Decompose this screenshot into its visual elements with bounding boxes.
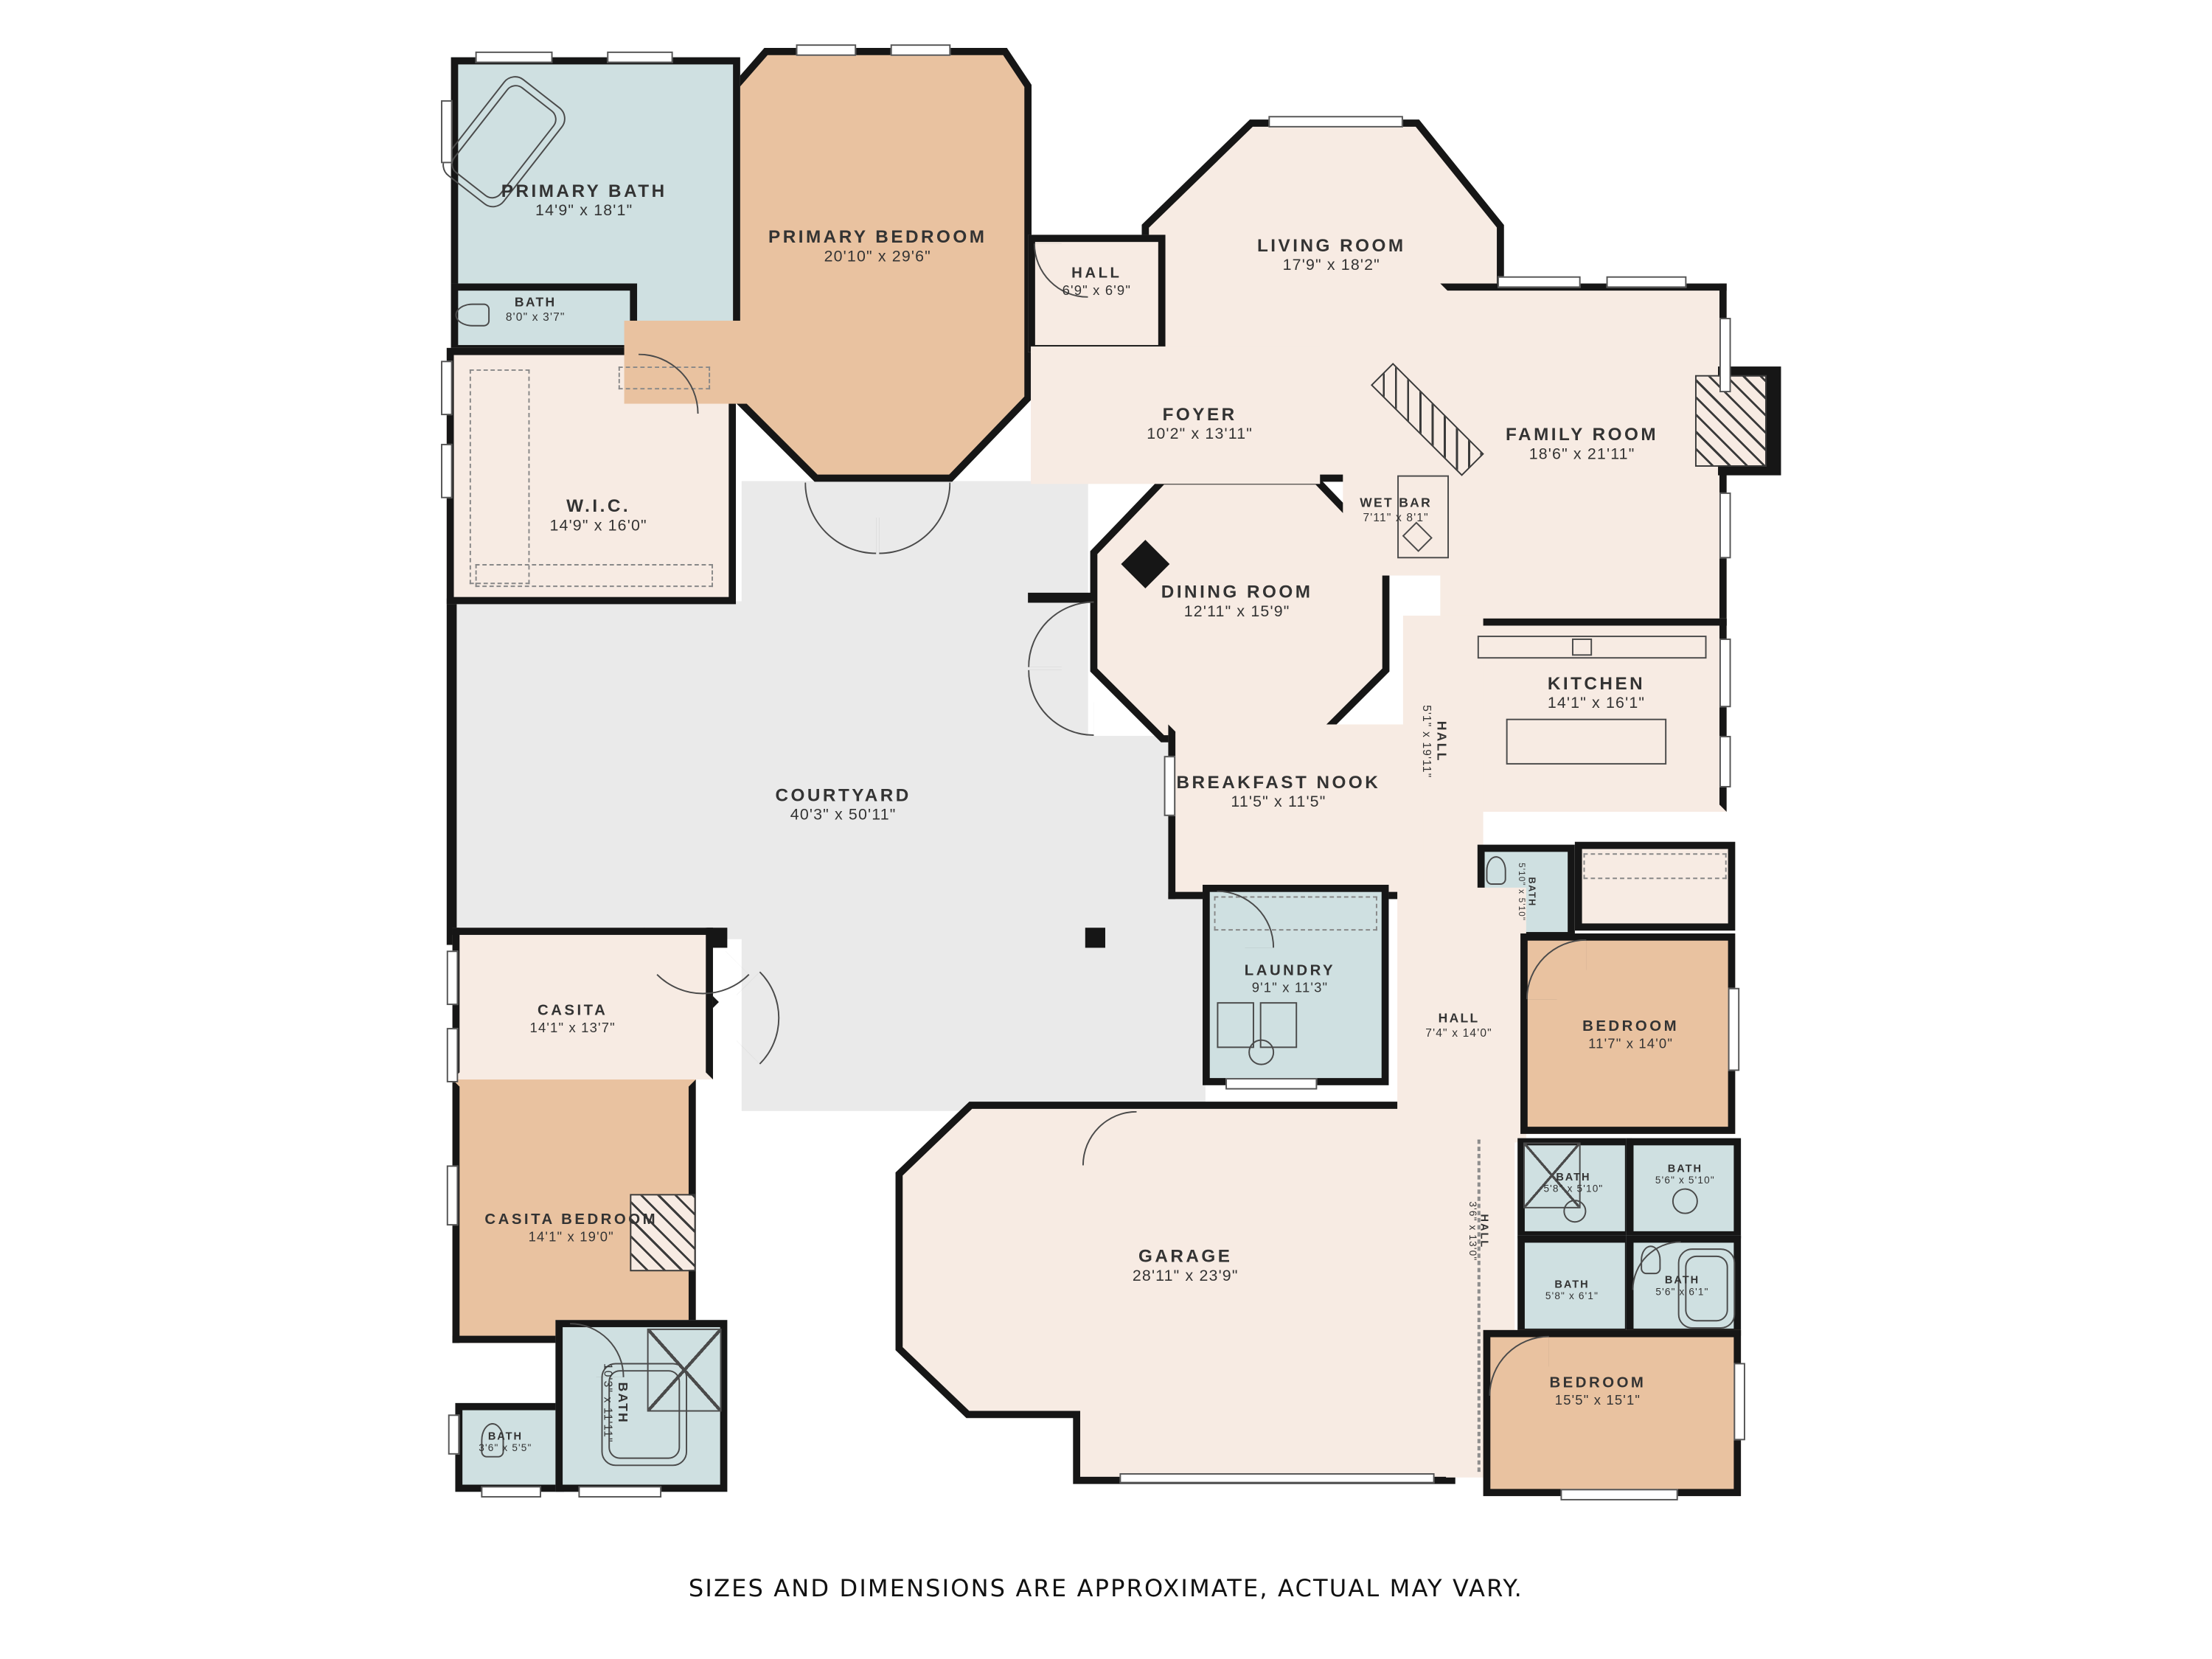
room-label-bath-hall: BATH5'10" x 5'10" xyxy=(1516,863,1536,921)
window xyxy=(448,1414,460,1454)
wic-closet-line xyxy=(470,369,530,584)
window xyxy=(1164,756,1176,816)
floor-plan-stage: PRIMARY BATH14'9" x 18'1" BATH8'0" x 3'7… xyxy=(0,0,2212,1659)
room-label-bath-casita: BATH10'3" x 11'11" xyxy=(602,1363,630,1443)
dryer-icon xyxy=(1260,1002,1297,1048)
kitchen-sink-icon xyxy=(1572,639,1592,655)
window xyxy=(891,44,951,56)
sink-icon xyxy=(1672,1189,1698,1214)
window xyxy=(447,950,459,1005)
toilet-icon xyxy=(455,304,490,327)
room-label-family: FAMILY ROOM18'6" x 21'11" xyxy=(1506,425,1658,463)
window xyxy=(1728,988,1740,1071)
window xyxy=(1719,639,1731,707)
room-label-hall-lower: HALL3'6" x 13'0" xyxy=(1467,1201,1491,1261)
window xyxy=(578,1486,661,1498)
window xyxy=(1719,736,1731,787)
closet-rod-line xyxy=(1584,853,1727,879)
room-label-bath-b: BATH5'6" x 5'10" xyxy=(1655,1162,1715,1186)
wic-closet-line xyxy=(476,564,713,587)
window xyxy=(447,1028,459,1082)
room-label-hall-bedrooms: HALL7'4" x 14'0" xyxy=(1425,1011,1492,1040)
room-garage xyxy=(899,1105,1451,1481)
room-label-courtyard: COURTYARD40'3" x 50'11" xyxy=(776,785,911,824)
room-label-foyer: FOYER10'2" x 13'11" xyxy=(1147,405,1253,443)
room-label-bedroom-ne: BEDROOM11'7" x 14'0" xyxy=(1582,1018,1679,1053)
room-label-wet-bar: WET BAR7'11" x 8'1" xyxy=(1360,495,1432,524)
room-label-bath-casita-small: BATH3'6" x 5'5" xyxy=(479,1430,532,1454)
window xyxy=(1560,1489,1677,1500)
room-label-hall-kitchen: HALL5'1" x 19'11" xyxy=(1420,705,1449,778)
room-label-bath-c: BATH5'8" x 6'1" xyxy=(1545,1278,1599,1302)
window xyxy=(607,52,672,63)
room-label-bath-d: BATH5'6" x 6'1" xyxy=(1655,1273,1708,1298)
window xyxy=(1719,493,1731,558)
room-label-dining: DINING ROOM12'11" x 15'9" xyxy=(1161,582,1313,620)
room-label-bedroom-se: BEDROOM15'5" x 15'1" xyxy=(1549,1374,1646,1409)
room-label-breakfast-nook: BREAKFAST NOOK11'5" x 11'5" xyxy=(1177,773,1381,811)
sink-icon xyxy=(1563,1200,1586,1222)
floor-plan: PRIMARY BATH14'9" x 18'1" BATH8'0" x 3'7… xyxy=(0,0,2212,1659)
window xyxy=(441,444,453,498)
room-label-wic: W.I.C.14'9" x 16'0" xyxy=(549,496,647,535)
window xyxy=(1607,276,1687,288)
window xyxy=(1268,116,1403,128)
window xyxy=(441,361,453,415)
window xyxy=(447,1166,459,1226)
room-label-bath-primary-half: BATH8'0" x 3'7" xyxy=(506,295,566,324)
window xyxy=(796,44,857,56)
washer-icon xyxy=(1217,1002,1253,1048)
room-label-primary-bath: PRIMARY BATH14'9" x 18'1" xyxy=(501,181,667,220)
window xyxy=(476,52,553,63)
kitchen-island xyxy=(1506,719,1666,765)
window xyxy=(481,1486,541,1498)
window xyxy=(441,100,453,163)
room-label-casita-bedroom: CASITA BEDROOM14'1" x 19'0" xyxy=(484,1211,658,1246)
room-label-casita: CASITA14'1" x 13'7" xyxy=(530,1002,616,1037)
room-label-garage: GARAGE28'11" x 23'9" xyxy=(1133,1246,1239,1284)
window xyxy=(1733,1363,1745,1440)
room-label-kitchen: KITCHEN14'1" x 16'1" xyxy=(1548,674,1645,712)
garage-door xyxy=(1119,1473,1434,1484)
hall-center-line xyxy=(1478,1140,1481,1472)
window xyxy=(1719,318,1731,392)
room-label-laundry: LAUNDRY9'1" x 11'3" xyxy=(1245,962,1335,997)
window xyxy=(1225,1078,1317,1090)
toilet-icon xyxy=(1486,856,1506,885)
room-label-living: LIVING ROOM17'9" x 18'2" xyxy=(1257,235,1406,274)
room-label-primary-bedroom: PRIMARY BEDROOM20'10" x 29'6" xyxy=(768,227,987,265)
room-label-bath-a: BATH5'8" x 5'10" xyxy=(1543,1170,1603,1194)
courtyard-post xyxy=(1085,928,1105,947)
window xyxy=(1498,276,1581,288)
room-breakfast-nook xyxy=(1168,725,1423,900)
room-label-hall-upper: HALL6'9" x 6'9" xyxy=(1062,265,1131,299)
